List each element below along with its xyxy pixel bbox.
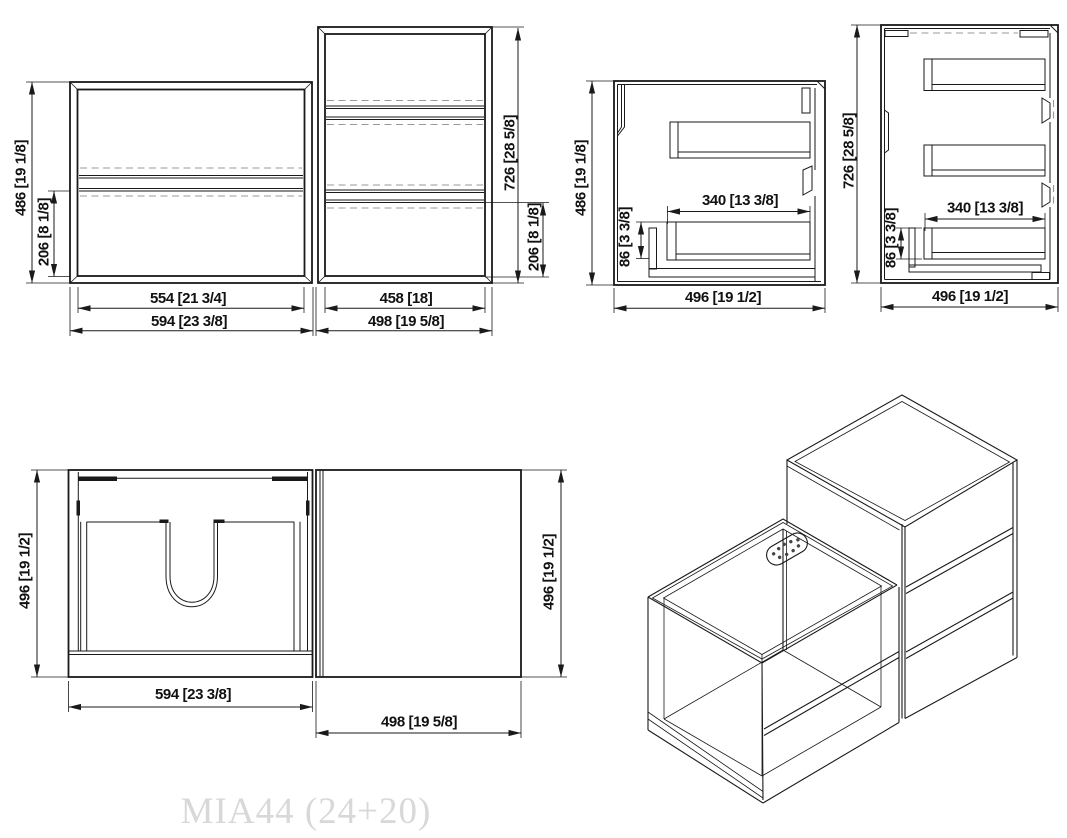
dim-side-tall-drawer-depth: 340 [13 3/8] xyxy=(947,200,1023,217)
dim-side-tall-drawer-height: 86 [3 3/8] xyxy=(883,208,900,269)
dim-top-side-width: 498 [19 5/8] xyxy=(381,714,457,731)
dim-side-vanity-height: 486 [19 1/8] xyxy=(573,140,590,216)
iso-vanity-cabinet xyxy=(648,519,899,803)
front-elevation-view: 486 [19 1/8] 206 [8 1/8] 554 [21 3/4] 59… xyxy=(13,27,550,336)
top-plan-view: 496 [19 1/2] 594 [23 3/8] 496 [19 1/2] 4… xyxy=(17,470,568,738)
dim-tall-inner-width: 458 [18] xyxy=(380,290,433,307)
side-cabinet-top-outline xyxy=(316,470,521,677)
tall-side-dimensions: 726 [28 5/8] 86 [3 3/8] 340 [13 3/8] 496… xyxy=(841,25,1059,312)
tall-side-outline xyxy=(881,25,1058,283)
tall-cabinet-front-outline xyxy=(318,27,492,283)
vanity-top-outline xyxy=(69,470,313,677)
dim-side-vanity-drawer-depth: 340 [13 3/8] xyxy=(702,192,778,209)
vanity-side-dimensions: 486 [19 1/8] 86 [3 3/8] 340 [13 3/8] 496… xyxy=(573,81,826,313)
dim-tall-height: 726 [28 5/8] xyxy=(502,115,519,191)
dim-vanity-outer-width: 594 [23 3/8] xyxy=(151,313,227,330)
drawing-svg: 486 [19 1/8] 206 [8 1/8] 554 [21 3/4] 59… xyxy=(0,0,1067,838)
dim-vanity-inner-width: 554 [21 3/4] xyxy=(150,290,226,307)
mounting-bracket-plate xyxy=(763,529,811,568)
vanity-front-outline xyxy=(70,82,312,283)
dim-side-vanity-drawer-height: 86 [3 3/8] xyxy=(617,207,634,268)
iso-tall-cabinet xyxy=(787,395,1017,719)
dim-side-tall-depth: 496 [19 1/2] xyxy=(932,288,1008,305)
dim-tall-drawer-height: 206 [8 1/8] xyxy=(526,203,543,272)
model-watermark: MIA44 (24+20) xyxy=(181,791,432,832)
side-section-vanity-view: 486 [19 1/8] 86 [3 3/8] 340 [13 3/8] 496… xyxy=(573,81,826,313)
top-view-dimensions: 496 [19 1/2] 594 [23 3/8] 496 [19 1/2] 4… xyxy=(17,470,568,738)
dim-vanity-height: 486 [19 1/8] xyxy=(13,140,30,216)
sink-plumbing-cutout xyxy=(166,522,218,607)
dim-tall-outer-width: 498 [19 5/8] xyxy=(368,313,444,330)
isometric-view xyxy=(648,395,1017,803)
dim-side-vanity-depth: 496 [19 1/2] xyxy=(685,289,761,306)
dim-top-vanity-depth: 496 [19 1/2] xyxy=(17,533,34,609)
dim-top-side-depth: 496 [19 1/2] xyxy=(541,534,558,610)
side-section-tall-view: 726 [28 5/8] 86 [3 3/8] 340 [13 3/8] 496… xyxy=(841,25,1059,312)
dim-side-tall-height: 726 [28 5/8] xyxy=(841,113,858,189)
front-dimensions: 486 [19 1/8] 206 [8 1/8] 554 [21 3/4] 59… xyxy=(13,27,550,336)
vanity-side-outline xyxy=(614,81,825,285)
technical-drawing-sheet: 486 [19 1/8] 206 [8 1/8] 554 [21 3/4] 59… xyxy=(0,0,1067,838)
dim-vanity-drawer-height: 206 [8 1/8] xyxy=(36,198,53,267)
dim-top-vanity-width: 594 [23 3/8] xyxy=(155,686,231,703)
